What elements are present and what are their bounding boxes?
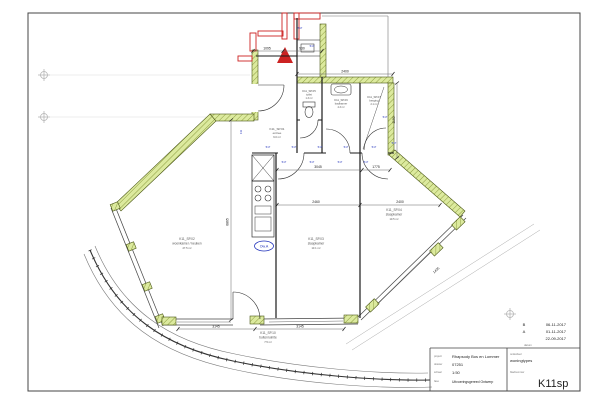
facade-post bbox=[250, 316, 264, 324]
project-label: project bbox=[434, 354, 442, 358]
dossier-value: 07251 bbox=[452, 362, 464, 367]
room-code: K11_SP.10 bbox=[260, 331, 276, 335]
dimension-text: 2460 bbox=[312, 200, 320, 204]
dimension-text: 3145 bbox=[212, 325, 220, 329]
socket-label: 517 bbox=[310, 44, 315, 48]
dimension-text: 6865 bbox=[226, 218, 230, 226]
room-code: K11_SP.02 bbox=[179, 237, 195, 241]
room-area: 1.3 m² bbox=[305, 97, 312, 100]
socket-label: 517 bbox=[372, 145, 377, 149]
schaal-value: 1:50 bbox=[452, 370, 461, 375]
facade-post bbox=[344, 315, 358, 323]
onderdeel-label: onderdeel bbox=[510, 352, 522, 356]
socket-label: 517 bbox=[338, 160, 343, 164]
fase-value: Uitvoeringsgereed Ontwerp bbox=[452, 380, 493, 384]
datum-label: datum bbox=[524, 343, 532, 347]
room-name: badkamer bbox=[335, 102, 348, 106]
dimension-text: 930 bbox=[299, 47, 305, 51]
socket-label: 517 bbox=[282, 160, 287, 164]
socket-label: 517 bbox=[364, 160, 369, 164]
room-area: 6.0 m² bbox=[273, 135, 281, 139]
room-code: K11_SP.03 bbox=[308, 237, 324, 241]
dimension-text: 1190 bbox=[392, 116, 396, 123]
room-area: 2.1 m² bbox=[370, 103, 377, 106]
wall-shaft-right bbox=[320, 24, 326, 77]
room-name: slaapkamer bbox=[386, 213, 403, 217]
fase-label: fase bbox=[434, 379, 439, 383]
onderdeel-value: woningtypes bbox=[510, 358, 532, 363]
room-name: woonkamer / keuken bbox=[172, 242, 202, 246]
room-area: 27.5 m² bbox=[182, 246, 191, 250]
dimension-text: 3145 bbox=[296, 325, 304, 329]
socket-label: 517 bbox=[298, 26, 303, 30]
room-area: 7.5 m² bbox=[264, 340, 272, 344]
wall-stub bbox=[210, 114, 254, 121]
revision-date: 22-09-2017 bbox=[546, 336, 567, 341]
sheet-border bbox=[28, 13, 580, 391]
revision-date: 01-11-2017 bbox=[546, 329, 567, 334]
kitchen-unit-label: Ow.A bbox=[260, 245, 269, 249]
project-value: Rhapsody Bos en Lommer bbox=[452, 354, 500, 359]
bladnummer-value: K11sp bbox=[538, 378, 568, 390]
room-name: berging bbox=[369, 99, 379, 103]
dossier-label: dossier bbox=[434, 362, 442, 366]
door-opening bbox=[250, 84, 259, 112]
socket-label: 517 bbox=[344, 145, 349, 149]
drawing-sheet: Ow.A 6865 1095 930 2400 3045 1775 2460 2… bbox=[0, 0, 600, 400]
room-name: entree bbox=[273, 131, 282, 135]
room-name: buitenruimte bbox=[259, 336, 277, 340]
dimension-text: 2400 bbox=[396, 200, 404, 204]
revision-letter: B bbox=[523, 322, 526, 327]
dimension-text: 2400 bbox=[341, 70, 349, 74]
dimension-text: 3045 bbox=[314, 165, 322, 169]
socket-label: 517 bbox=[310, 160, 315, 164]
room-area: 4.3 m² bbox=[337, 106, 344, 109]
room-name: toilet bbox=[306, 93, 312, 97]
facade-post bbox=[162, 317, 176, 325]
bladnummer-label: bladnummer bbox=[510, 370, 525, 374]
dimension-text: 1095 bbox=[263, 47, 271, 51]
room-area: 10.5 m² bbox=[389, 217, 398, 221]
room-code: K11_SP.04 bbox=[386, 208, 402, 212]
socket-label: 517 bbox=[318, 145, 323, 149]
socket-label: 517 bbox=[266, 145, 271, 149]
wall-utility-top bbox=[297, 77, 393, 83]
room-area: 13.1 m² bbox=[311, 246, 320, 250]
socket-label: 517 bbox=[292, 145, 297, 149]
room-name: slaapkamer bbox=[308, 242, 325, 246]
revision-date: 06-11-2017 bbox=[546, 322, 567, 327]
socket-label: 517 bbox=[392, 141, 397, 145]
socket-label: 517 bbox=[383, 115, 388, 119]
shaft-label: 111 bbox=[239, 129, 243, 134]
floor-plan-svg: Ow.A 6865 1095 930 2400 3045 1775 2460 2… bbox=[0, 0, 600, 400]
schaal-label: schaal bbox=[434, 370, 442, 374]
revision-letter: A bbox=[523, 329, 526, 334]
dimension-text: 1775 bbox=[372, 165, 380, 169]
